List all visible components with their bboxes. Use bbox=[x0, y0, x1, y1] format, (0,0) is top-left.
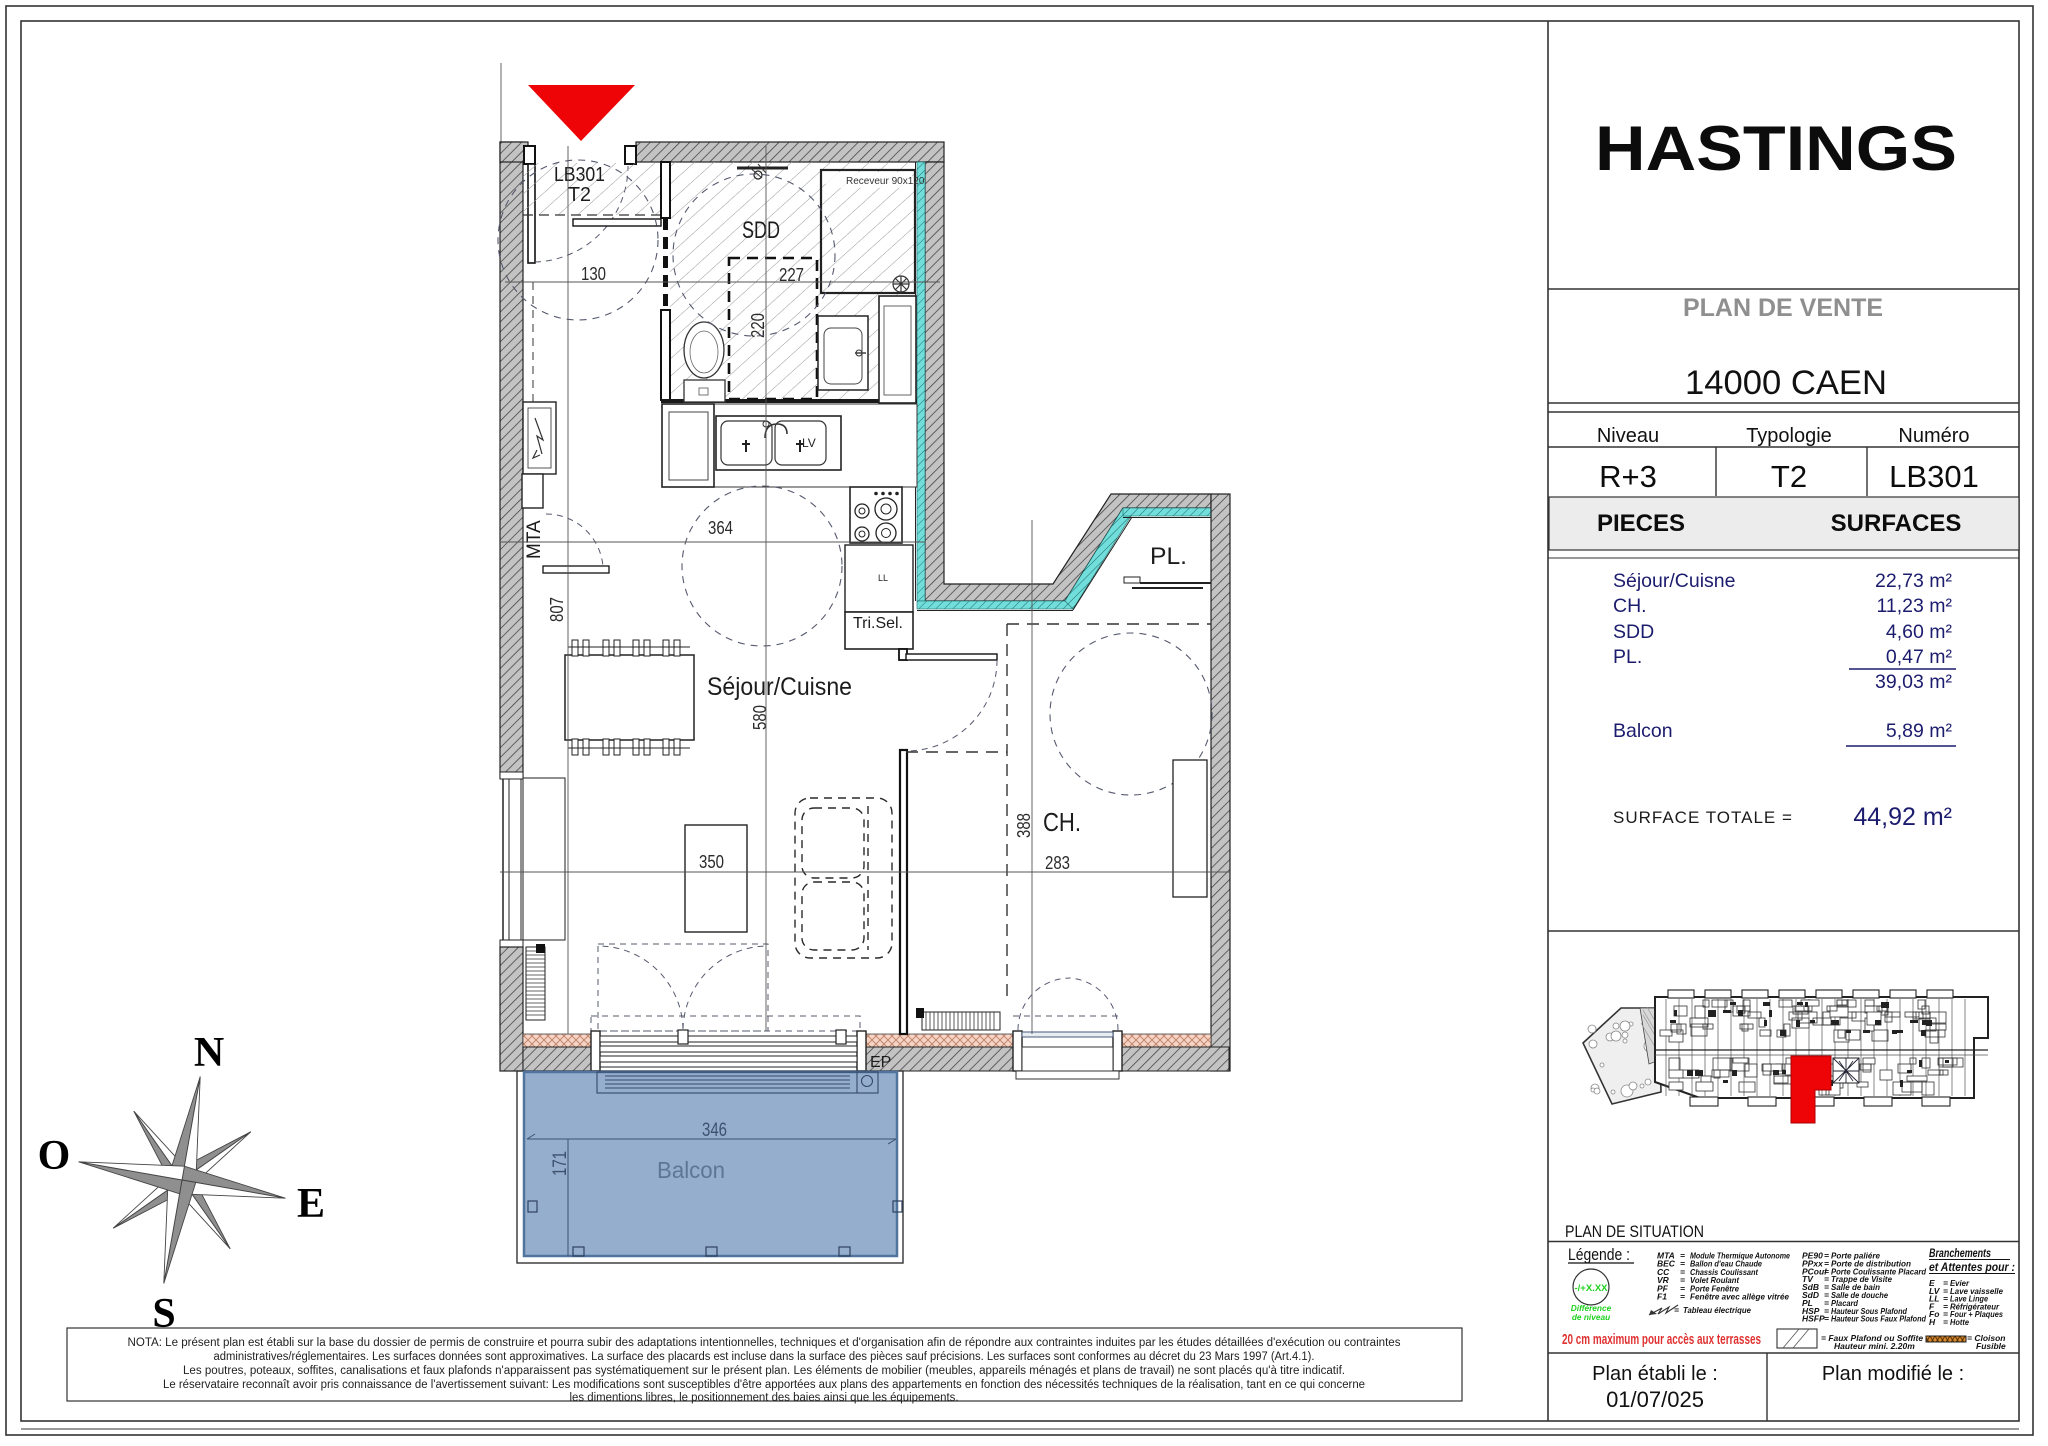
svg-text:Séjour/Cuisne: Séjour/Cuisne bbox=[1613, 570, 1735, 592]
svg-text:LB301: LB301 bbox=[1889, 459, 1979, 494]
svg-text:T2: T2 bbox=[1771, 459, 1807, 494]
svg-text:350: 350 bbox=[699, 851, 724, 872]
svg-text:0,47 m²: 0,47 m² bbox=[1886, 646, 1953, 668]
svg-text:EP: EP bbox=[870, 1054, 891, 1071]
svg-text:H: H bbox=[1929, 1317, 1936, 1327]
svg-text:et Attentes pour :: et Attentes pour : bbox=[1929, 1262, 2015, 1274]
svg-text:14000 CAEN: 14000 CAEN bbox=[1685, 364, 1887, 402]
svg-text:Balcon: Balcon bbox=[657, 1157, 725, 1183]
svg-text:283: 283 bbox=[1045, 852, 1070, 873]
svg-text:01/07/025: 01/07/025 bbox=[1606, 1387, 1704, 1412]
svg-text:E: E bbox=[297, 1181, 325, 1227]
svg-text:R+3: R+3 bbox=[1599, 459, 1657, 494]
svg-text:580: 580 bbox=[749, 705, 770, 730]
svg-text:F1: F1 bbox=[1657, 1292, 1667, 1302]
svg-text:Séjour/Cuisne: Séjour/Cuisne bbox=[707, 673, 852, 701]
svg-text:Fenêtre avec allège vitrée: Fenêtre avec allège vitrée bbox=[1690, 1292, 1789, 1302]
svg-text:PL.: PL. bbox=[1150, 543, 1187, 570]
svg-text:=: = bbox=[1824, 1314, 1829, 1324]
svg-text:364: 364 bbox=[708, 517, 733, 538]
svg-text:Légende :: Légende : bbox=[1568, 1246, 1630, 1264]
svg-text:11,23 m²: 11,23 m² bbox=[1876, 595, 1952, 617]
svg-text:Typologie: Typologie bbox=[1746, 425, 1832, 447]
svg-text:220: 220 bbox=[747, 313, 768, 338]
svg-text:=: = bbox=[1680, 1292, 1685, 1302]
svg-text:Tri.Sel.: Tri.Sel. bbox=[853, 615, 903, 632]
svg-text:22,73 m²: 22,73 m² bbox=[1875, 570, 1952, 592]
svg-text:Niveau: Niveau bbox=[1597, 425, 1659, 447]
svg-text:Tableau électrique: Tableau électrique bbox=[1683, 1305, 1751, 1315]
svg-text:PLAN DE VENTE: PLAN DE VENTE bbox=[1683, 294, 1883, 322]
svg-text:SURFACES: SURFACES bbox=[1831, 510, 1962, 537]
svg-text:administratives/réglementaires: administratives/réglementaires. Les surf… bbox=[214, 1351, 1315, 1363]
svg-text:N: N bbox=[194, 1030, 224, 1076]
svg-text:39,03 m²: 39,03 m² bbox=[1875, 671, 1952, 693]
svg-text:LL: LL bbox=[878, 573, 888, 583]
svg-text:LB301: LB301 bbox=[554, 164, 605, 186]
svg-text:T2: T2 bbox=[568, 184, 591, 206]
svg-text:44,92 m²: 44,92 m² bbox=[1853, 803, 1952, 831]
svg-text:Fusible: Fusible bbox=[1976, 1341, 2006, 1351]
svg-text:HSFP: HSFP bbox=[1802, 1314, 1825, 1324]
svg-text:PIECES: PIECES bbox=[1597, 510, 1685, 537]
svg-text:CH.: CH. bbox=[1613, 595, 1647, 617]
svg-text:HASTINGS: HASTINGS bbox=[1595, 114, 1957, 184]
svg-text:Plan modifié le :: Plan modifié le : bbox=[1822, 1363, 1964, 1385]
svg-text:LV: LV bbox=[802, 436, 816, 450]
svg-text:-/+X.XX: -/+X.XX bbox=[1575, 1283, 1609, 1294]
svg-text:Hotte: Hotte bbox=[1950, 1317, 1969, 1327]
svg-text:Branchements: Branchements bbox=[1929, 1248, 1991, 1260]
svg-text:Numéro: Numéro bbox=[1898, 425, 1969, 447]
svg-text:PLAN DE SITUATION: PLAN DE SITUATION bbox=[1565, 1223, 1704, 1241]
svg-text:346: 346 bbox=[702, 1120, 727, 1141]
svg-text:130: 130 bbox=[581, 263, 606, 284]
svg-text:PL.: PL. bbox=[1613, 646, 1642, 668]
svg-text:SDD: SDD bbox=[742, 217, 780, 244]
svg-text:=: = bbox=[1943, 1317, 1948, 1327]
svg-text:4,60 m²: 4,60 m² bbox=[1886, 621, 1953, 643]
svg-text:Le réservataire reconnaît avoi: Le réservataire reconnaît avoir pris con… bbox=[163, 1379, 1365, 1391]
svg-text:MTA: MTA bbox=[524, 520, 545, 559]
svg-text:Balcon: Balcon bbox=[1613, 720, 1673, 742]
svg-text:807: 807 bbox=[546, 597, 567, 622]
svg-text:Receveur 90x120: Receveur 90x120 bbox=[846, 176, 925, 187]
svg-text:5,89 m²: 5,89 m² bbox=[1886, 720, 1953, 742]
svg-text:NOTA: Le présent plan est étab: NOTA: Le présent plan est établi sur la … bbox=[128, 1337, 1401, 1349]
svg-text:Hauteur mini. 2.20m: Hauteur mini. 2.20m bbox=[1834, 1341, 1915, 1351]
svg-text:O: O bbox=[38, 1133, 71, 1179]
svg-text:388: 388 bbox=[1013, 813, 1034, 838]
svg-text:SDD: SDD bbox=[1613, 621, 1654, 643]
svg-text:20 cm maximum pour accès aux t: 20 cm maximum pour accès aux terrasses bbox=[1562, 1331, 1761, 1348]
svg-text:Hauteur Sous Faux Plafond: Hauteur Sous Faux Plafond bbox=[1831, 1314, 1927, 1324]
svg-text:Les poutres, poteaux, soffites: Les poutres, poteaux, soffites, canalisa… bbox=[183, 1365, 1345, 1377]
svg-text:Plan établi le :: Plan établi le : bbox=[1592, 1363, 1718, 1385]
svg-text:SURFACE TOTALE =: SURFACE TOTALE = bbox=[1613, 808, 1793, 827]
svg-text:les dimentions libres, le posi: les dimentions libres, le positionnement… bbox=[570, 1392, 959, 1404]
svg-text:de niveau: de niveau bbox=[1572, 1312, 1610, 1322]
svg-text:CH.: CH. bbox=[1043, 807, 1081, 837]
